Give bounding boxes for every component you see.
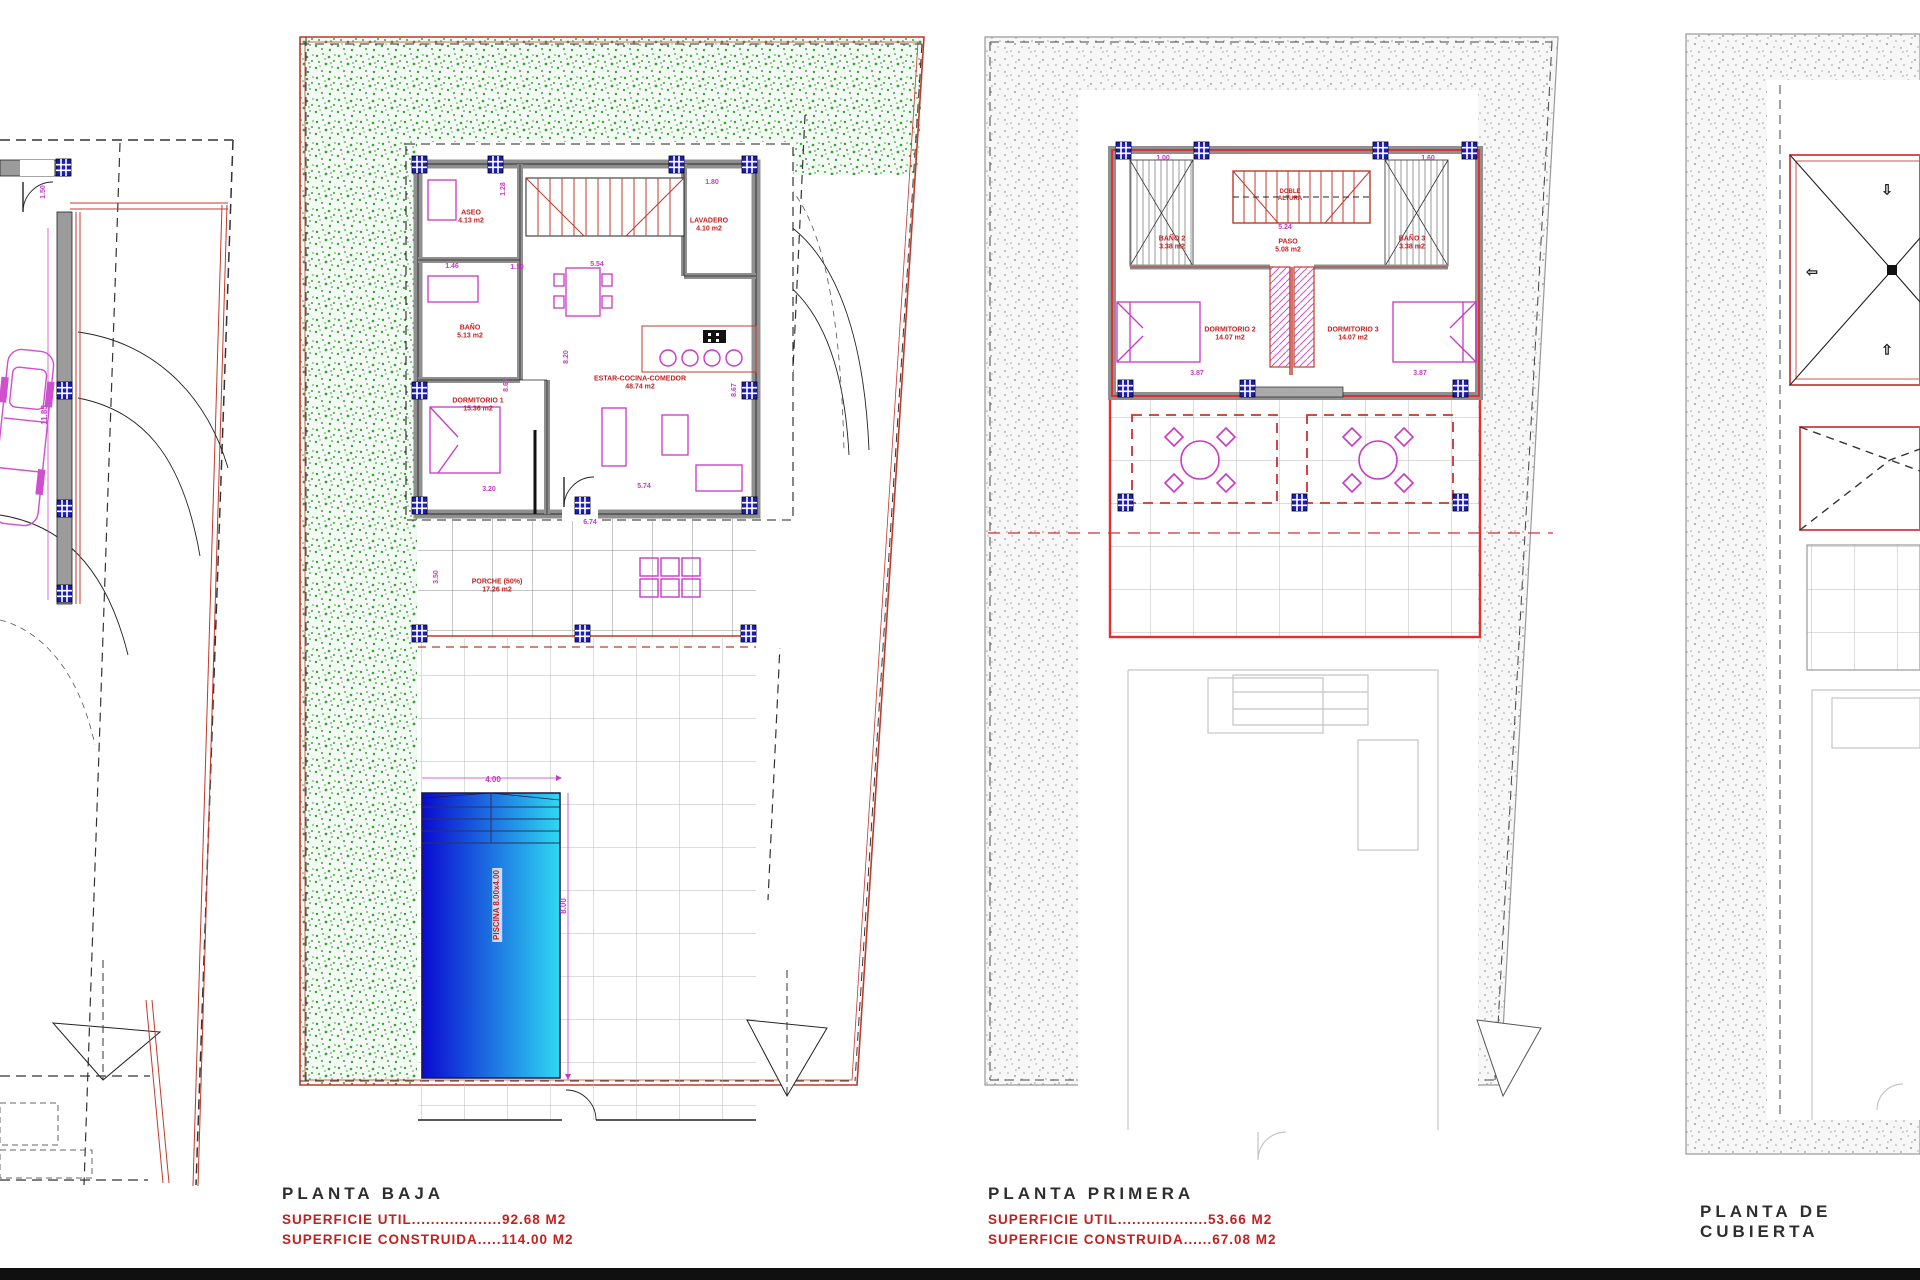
plan-label: 1.10	[510, 264, 524, 272]
plan-label: 1.46	[445, 263, 459, 271]
pitch-arrow-left-icon: ⇦	[1806, 264, 1818, 281]
plan-label: PISCINA 8.00x4.00	[492, 868, 502, 942]
plan-label: ESTAR-COCINA-COMEDOR 48.74 m2	[594, 376, 686, 393]
plan-label: 1.28	[500, 182, 508, 196]
plan-label: DORMITORIO 3 14.07 m2	[1327, 327, 1378, 344]
plan-label: ASEO 4.13 m2	[458, 210, 484, 227]
plan-label: 3.50	[433, 570, 441, 584]
plan-label: 4.00	[485, 775, 501, 785]
plan-label: 8.20	[563, 350, 571, 364]
plan-label: 8.00	[559, 898, 569, 914]
plan-label: 3.20	[482, 486, 496, 494]
plan-label: 1.60	[1421, 155, 1435, 163]
plan-label: DORMITORIO 2 14.07 m2	[1204, 327, 1255, 344]
plan-label: PORCHE (50%) 17.26 m2	[472, 579, 523, 596]
plan-label: 3.87	[1190, 370, 1204, 378]
pitch-arrow-down-icon: ⇩	[1881, 182, 1893, 199]
plan-label: 6.74	[583, 519, 597, 527]
plan-label: DOBLE ALTURA	[1278, 189, 1302, 203]
plan-label: LAVADERO 4.10 m2	[690, 218, 728, 235]
pitch-arrow-up-icon: ⇧	[1881, 342, 1893, 359]
plan-label: 5.74	[637, 483, 651, 491]
plan-label: 3.87	[1413, 370, 1427, 378]
plan-label: BAÑO 5.13 m2	[457, 325, 483, 342]
plan-label: BAÑO 2 3.38 m2	[1159, 236, 1185, 253]
plan-label: 5.24	[1278, 224, 1292, 232]
plan-label: BAÑO 3 3.38 m2	[1399, 236, 1425, 253]
plan-label: PASO 5.08 m2	[1275, 239, 1301, 256]
label-layer: 1.5011.85ASEO 4.13 m2LAVADERO 4.10 m2BAÑ…	[0, 0, 1920, 1280]
plan-label: 8.67	[731, 383, 739, 397]
plan-label: 11.85	[40, 405, 50, 425]
plan-label: 1.50	[40, 185, 48, 199]
floorplan-sheet: PLANTA BAJA SUPERFICIE UTIL.............…	[0, 0, 1920, 1280]
plan-label: 1.00	[1156, 155, 1170, 163]
plan-label: 8.67	[503, 378, 511, 392]
plan-label: 1.80	[705, 179, 719, 187]
plan-label: 5.54	[590, 261, 604, 269]
plan-label: DORMITORIO 1 15.36 m2	[452, 398, 503, 415]
